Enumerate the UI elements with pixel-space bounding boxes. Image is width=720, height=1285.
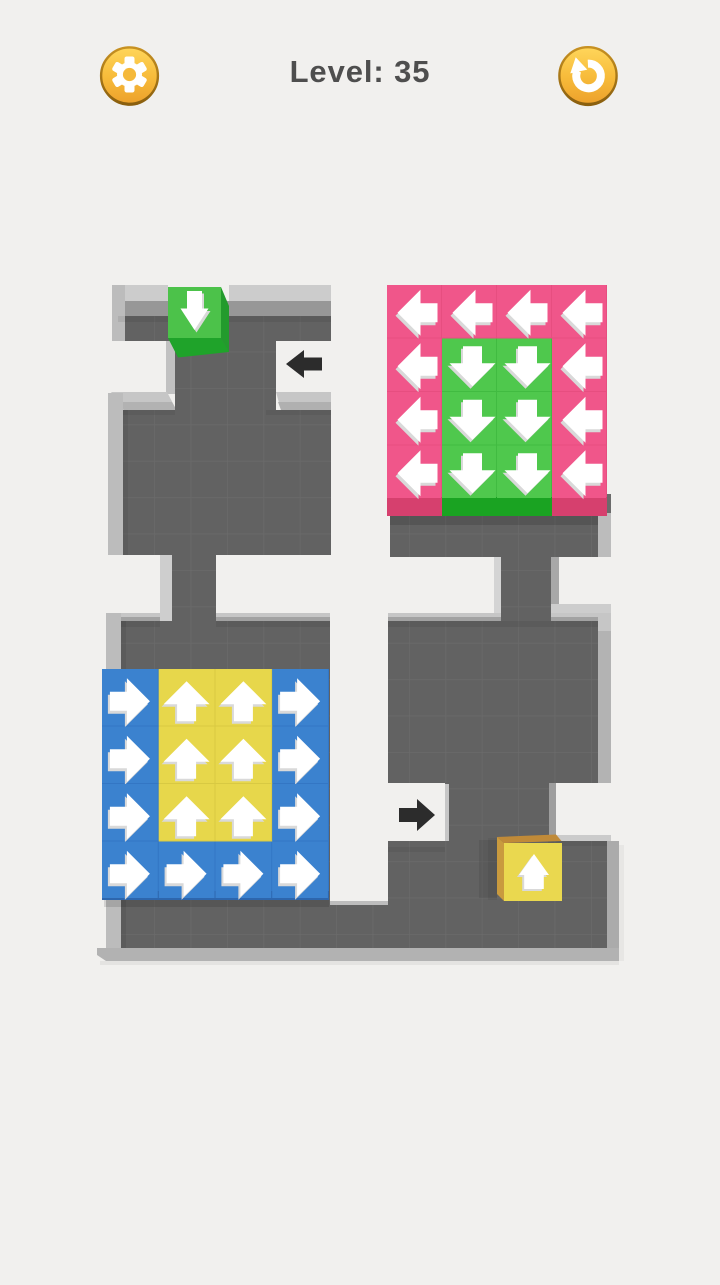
svg-text:Level: 35: Level: 35 [290,54,431,89]
